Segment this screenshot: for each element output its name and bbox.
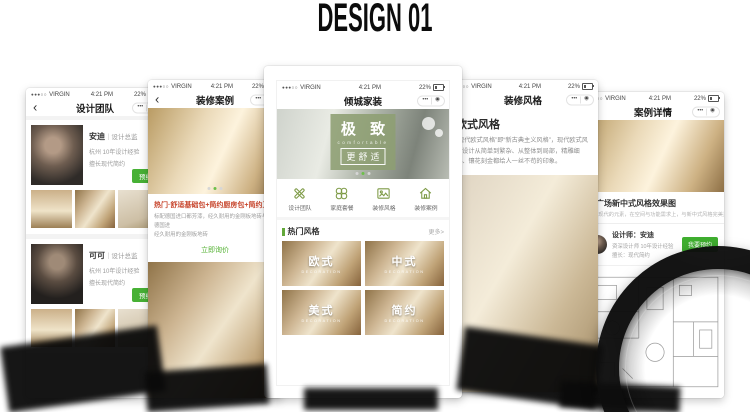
status-bar: ●●●○○VIRGIN 4:21 PM 22% [448, 80, 598, 91]
status-bar: ●●●○○VIRGIN 4:21 PM 22% [277, 81, 449, 92]
signal-icon: ●●●○○ [153, 84, 169, 89]
case-photo[interactable] [582, 120, 724, 192]
exit-circle-icon[interactable]: ◉ [710, 109, 715, 115]
phone-home: ●●●○○VIRGIN 4:21 PM 22% 倾城家装 •••◉ 极 致 co… [264, 66, 462, 398]
back-button[interactable]: ‹ [33, 99, 37, 114]
designer-name: 可可 [89, 251, 105, 260]
dot [356, 172, 359, 175]
clock-label: 4:21 PM [519, 84, 541, 90]
carrier-label: VIRGIN [471, 84, 492, 90]
status-bar: ●●●○○VIRGIN 4:21 PM 22% [582, 92, 724, 103]
section-accent-bar [282, 228, 285, 236]
back-button[interactable]: ‹ [155, 91, 159, 106]
clock-label: 4:21 PM [649, 96, 671, 102]
designer-name: 安迪 [89, 132, 105, 141]
status-bar: ●●●○○VIRGIN 4:21 PM 22% [26, 88, 164, 99]
case-description: 兼具现代的元素，在空间与功能需求上，与新中式风格完美呈现 [582, 211, 724, 224]
page-title: 装修案例 [196, 93, 234, 107]
dot [220, 187, 223, 190]
work-thumbnail[interactable] [75, 190, 116, 228]
style-grid: 欧式 DECORATION 中式 DECORATION 美式 DECORATIO… [277, 241, 449, 340]
nav-bar: 装修风格 •••◉ [448, 91, 598, 108]
designer-photo [31, 244, 83, 304]
page-title: 设计团队 [76, 101, 114, 115]
hero-subtitle: 更舒适 [340, 148, 385, 165]
designer-card[interactable]: 安迪｜设计总监 杭州 10年设计经验 擅长现代简约 预约 [26, 120, 164, 234]
style-sublabel: DECORATION [384, 319, 424, 323]
battery-percent: 22% [252, 84, 264, 90]
battery-icon [708, 95, 719, 102]
miniprogram-capsule[interactable]: •••◉ [566, 94, 594, 105]
dot-active [214, 187, 217, 190]
style-description: “现代欧式风格”即“新古典主义风格”，现代欧式风格设计从简单到繁杂、从整体到局部… [448, 136, 598, 168]
nav-bar: 案例详情 •••◉ [582, 103, 724, 120]
carousel-dots [208, 187, 223, 190]
exit-circle-icon[interactable]: ◉ [435, 98, 440, 104]
hero-banner[interactable]: 极 致 comfortable 更舒适 [277, 109, 449, 179]
quick-nav: 设计团队 家庭套餐 装修风格 装修案例 [277, 179, 449, 220]
more-link[interactable]: 更多> [428, 227, 444, 236]
hero-title: 极 致 [337, 118, 393, 139]
home-icon [418, 186, 433, 201]
signal-icon: ●●●○○ [282, 85, 298, 90]
carrier-label: VIRGIN [300, 85, 321, 91]
drop-shadow [304, 388, 438, 410]
battery-percent: 22% [694, 96, 706, 102]
style-label: 美式 [309, 302, 335, 318]
hero-overlay: 极 致 comfortable 更舒适 [330, 114, 395, 170]
hero-subtitle-en: comfortable [337, 140, 388, 145]
carrier-label: VIRGIN [605, 96, 626, 102]
work-thumbnail[interactable] [31, 190, 72, 228]
designer-role: 设计总监 [112, 134, 138, 141]
page-title: 装修风格 [504, 93, 542, 107]
quicknav-design-team[interactable]: 设计团队 [288, 186, 311, 212]
style-sublabel: DECORATION [301, 270, 341, 274]
style-heading: 欧式风格 [448, 108, 598, 136]
phone-decoration-cases: ●●●○○VIRGIN 4:21 PM 22% ‹ 装修案例 •••◉ 热门·舒… [148, 80, 282, 398]
clock-label: 4:21 PM [359, 85, 381, 91]
designer-experience: 资深设计师 10年设计经验 [612, 242, 677, 250]
package-desc-line2: 经久耐用的金刚板地砖 [154, 232, 208, 238]
quicknav-label: 装修风格 [372, 203, 395, 212]
quicknav-decor-cases[interactable]: 装修案例 [414, 186, 437, 212]
style-card-chinese[interactable]: 中式 DECORATION [365, 241, 444, 286]
carousel-dots [356, 172, 371, 175]
battery-percent: 22% [134, 92, 146, 98]
showcase-title: DESIGN 01 [169, 0, 582, 41]
inquire-now-link[interactable]: 立即询价 [154, 245, 276, 255]
page-title: 案例详情 [634, 105, 672, 119]
style-sublabel: DECORATION [384, 270, 424, 274]
nav-bar: ‹ 装修案例 •••◉ [148, 91, 282, 108]
more-dots-icon[interactable]: ••• [255, 97, 261, 103]
style-label: 欧式 [309, 253, 335, 269]
page-title: 倾城家装 [344, 94, 382, 108]
package-title: 热门·舒适基础包+简约厨房包+简约卫浴包 [154, 200, 276, 210]
style-label: 简约 [392, 302, 418, 318]
style-card-european[interactable]: 欧式 DECORATION [282, 241, 361, 286]
drop-shadow [145, 364, 269, 412]
dot [368, 172, 371, 175]
designer-photo [31, 125, 83, 185]
carrier-label: VIRGIN [49, 92, 70, 98]
nav-bar: 倾城家装 •••◉ [277, 92, 449, 109]
quicknav-label: 装修案例 [414, 203, 437, 212]
design-showcase: DESIGN 01 ●●●○○VIRGIN 4:21 PM 22% ‹ 设计团队… [0, 0, 750, 412]
clock-label: 4:21 PM [211, 84, 233, 90]
quicknav-decor-style[interactable]: 装修风格 [372, 186, 395, 212]
designer-name: 设计师：安迪 [612, 230, 677, 240]
more-dots-icon[interactable]: ••• [422, 98, 428, 104]
clock-label: 4:21 PM [91, 92, 113, 98]
signal-icon: ●●●○○ [31, 92, 47, 97]
style-label: 中式 [392, 253, 418, 269]
case-carousel-image[interactable] [148, 108, 282, 194]
dot [208, 187, 211, 190]
battery-icon [433, 84, 444, 91]
miniprogram-capsule[interactable]: •••◉ [417, 95, 445, 106]
battery-percent: 22% [568, 84, 580, 90]
miniprogram-capsule[interactable]: •••◉ [692, 106, 720, 117]
designer-role: 设计总监 [112, 253, 138, 260]
nav-bar: ‹ 设计团队 •••◉ [26, 99, 164, 116]
quicknav-label: 设计团队 [288, 203, 311, 212]
battery-icon [582, 83, 593, 90]
section-header: 热门风格 更多> [277, 220, 449, 241]
exit-circle-icon[interactable]: ◉ [584, 97, 589, 103]
quicknav-family-package[interactable]: 家庭套餐 [330, 186, 353, 212]
battery-percent: 22% [419, 85, 431, 91]
section-title: 热门风格 [288, 226, 429, 237]
style-sublabel: DECORATION [301, 319, 341, 323]
style-card-american[interactable]: 美式 DECORATION [282, 290, 361, 335]
case-title: 某广场新中式风格效果图 [582, 192, 724, 211]
dot-active [362, 172, 365, 175]
quicknav-label: 家庭套餐 [330, 203, 353, 212]
more-dots-icon[interactable]: ••• [571, 97, 577, 103]
clover-icon [334, 186, 349, 201]
more-dots-icon[interactable]: ••• [137, 105, 143, 111]
status-bar: ●●●○○VIRGIN 4:21 PM 22% [148, 80, 282, 91]
more-dots-icon[interactable]: ••• [697, 109, 703, 115]
package-info: 热门·舒适基础包+简约厨房包+简约卫浴包 标配德国进口都芳漆，经久耐用的金刚板地… [148, 194, 282, 262]
carrier-label: VIRGIN [171, 84, 192, 90]
picture-icon [376, 186, 391, 201]
package-desc-line1: 标配德国进口都芳漆，经久耐用的金刚板地砖与配德国进 [154, 214, 273, 229]
style-card-minimal[interactable]: 简约 DECORATION [365, 290, 444, 335]
crossed-pencils-icon [292, 186, 307, 201]
